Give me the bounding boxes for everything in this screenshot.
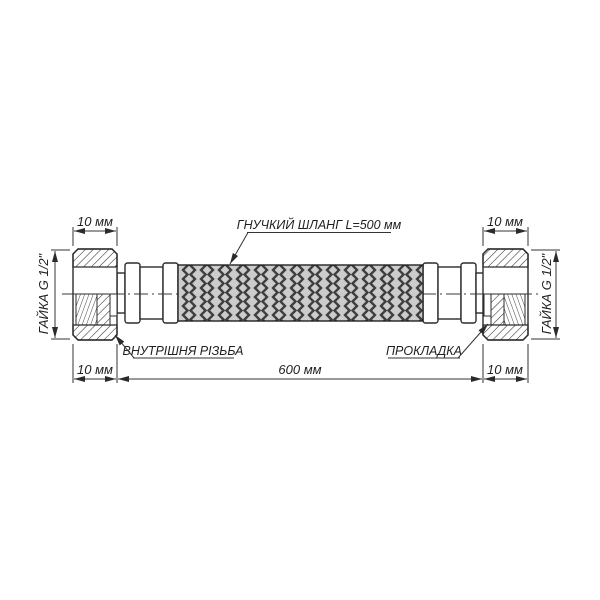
left-fitting-body (140, 267, 163, 319)
left-fitting (117, 263, 178, 323)
dim-label-top-left: 10 мм (77, 214, 113, 229)
right-nut-gasket (484, 294, 491, 316)
right-nut-section (483, 249, 528, 340)
left-nut-gasket-recess (110, 294, 117, 316)
internal-thread-label: ВНУТРІШНЯ РІЗЬБА (122, 344, 243, 358)
dim-label-bottom-left: 10 мм (77, 362, 113, 377)
hose-label: ГНУЧКИЙ ШЛАНГ L=500 мм (237, 216, 402, 232)
right-fitting-collar-inner (461, 263, 476, 323)
left-fitting-collar-inner (125, 263, 140, 323)
left-nut-wall-hatch (97, 294, 110, 325)
left-fitting-neck (117, 273, 125, 313)
right-nut-top-band-hatch (483, 249, 528, 267)
dim-label-bottom-right: 10 мм (487, 362, 523, 377)
gasket-label: ПРОКЛАДКА (386, 344, 462, 358)
braided-hose (178, 265, 423, 321)
callout-hose: ГНУЧКИЙ ШЛАНГ L=500 мм (230, 216, 402, 264)
hose-label-leader (230, 233, 248, 265)
right-nut-wall-hatch (491, 294, 504, 325)
callout-gasket: ПРОКЛАДКА (386, 324, 488, 358)
left-nut-thread-hatch (76, 294, 97, 325)
dim-label-right-nut-thread: ГАЙКА G 1/2" (538, 252, 554, 334)
right-nut-thread-hatch (504, 294, 525, 325)
dim-label-top-right: 10 мм (487, 214, 523, 229)
dim-label-left-nut-thread: ГАЙКА G 1/2" (35, 252, 51, 334)
right-nut-bottom-band-hatch (483, 325, 528, 340)
callout-internal-thread: ВНУТРІШНЯ РІЗЬБА (115, 335, 244, 358)
left-nut-section (73, 249, 117, 340)
right-fitting-body (438, 267, 461, 319)
left-nut-top-band-hatch (73, 249, 117, 267)
technical-drawing-page: 10 мм 10 мм 10 мм 600 мм 10 мм ГАЙКА G 1… (0, 0, 600, 600)
right-fitting-collar-outer (423, 263, 438, 323)
right-fitting (423, 263, 484, 323)
flexible-hose-drawing: 10 мм 10 мм 10 мм 600 мм 10 мм ГАЙКА G 1… (0, 0, 600, 600)
left-nut-bottom-band-hatch (73, 325, 117, 340)
left-fitting-collar-outer (163, 263, 178, 323)
dim-label-overall-length: 600 мм (278, 362, 321, 377)
